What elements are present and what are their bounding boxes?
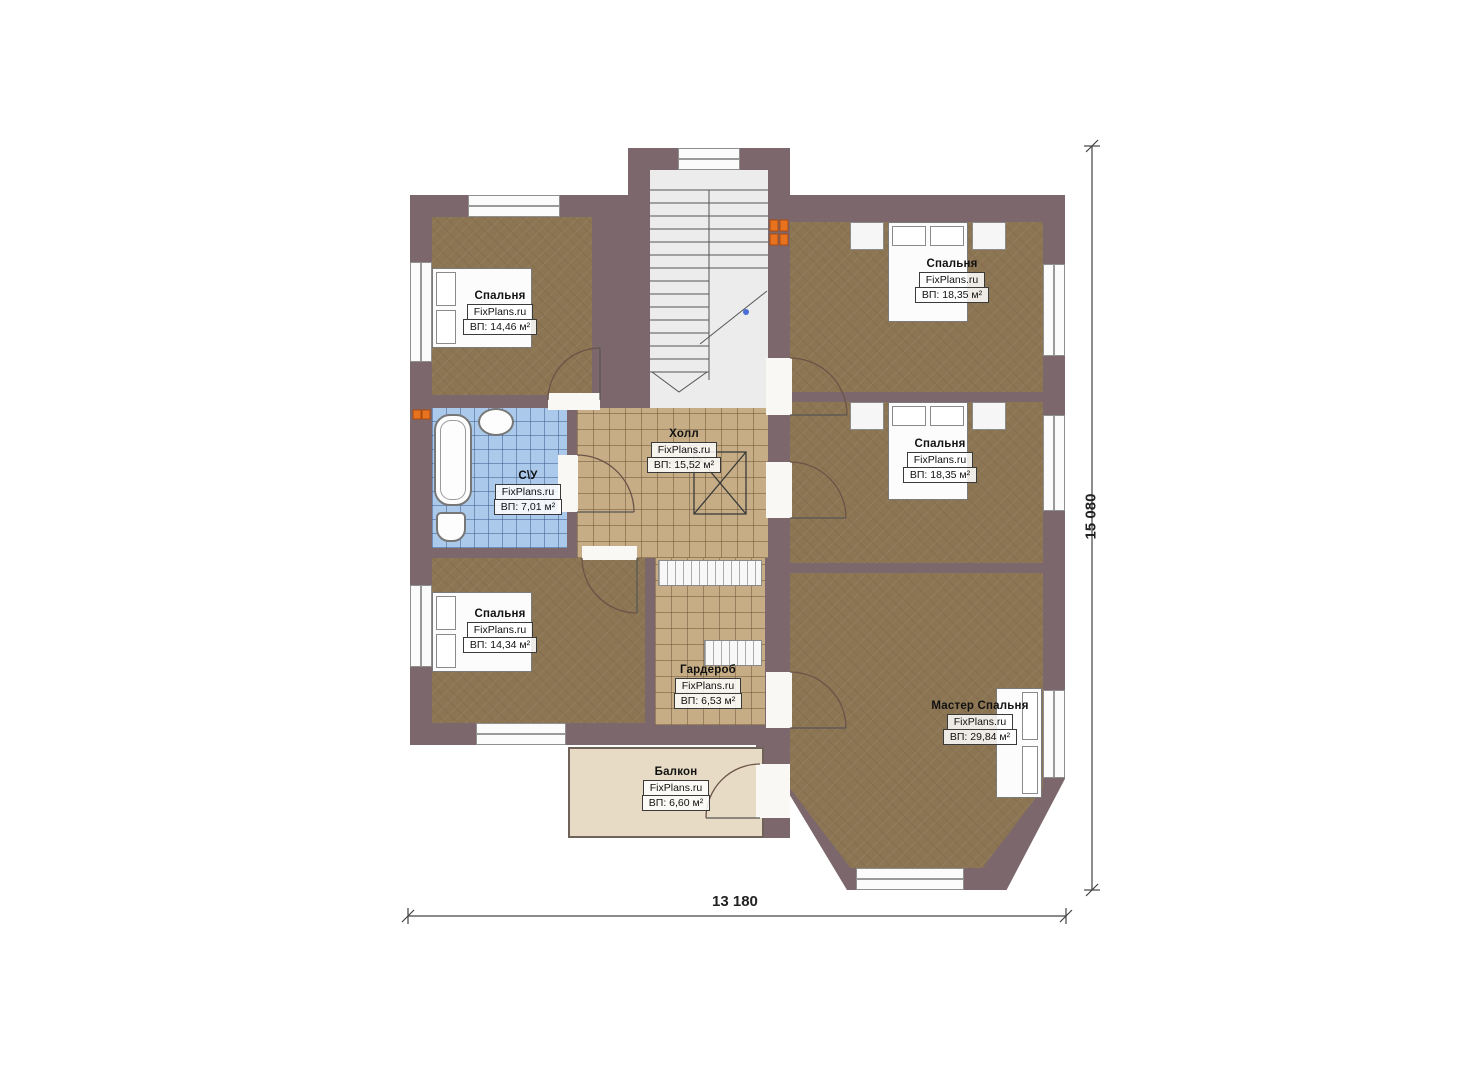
area-label: ВП: 6,53 м²	[674, 693, 742, 709]
window	[678, 148, 740, 170]
door-opening	[766, 358, 792, 415]
area-label: ВП: 14,34 м²	[463, 637, 537, 653]
brand-label: FixPlans.ru	[907, 452, 974, 468]
brand-label: FixPlans.ru	[495, 484, 562, 500]
room-label-hall: Холл FixPlans.ru ВП: 15,52 м²	[634, 428, 734, 473]
room-name: Мастер Спальня	[931, 700, 1028, 712]
nightstand	[850, 402, 884, 430]
area-label: ВП: 14,46 м²	[463, 319, 537, 335]
room-name: Спальня	[474, 608, 525, 620]
brand-label: FixPlans.ru	[651, 442, 718, 458]
window	[1043, 264, 1065, 356]
window	[410, 262, 432, 362]
room-label-master-bedroom: Мастер Спальня FixPlans.ru ВП: 29,84 м²	[930, 700, 1030, 745]
room-name: С\У	[518, 470, 537, 482]
door-opening	[582, 546, 637, 560]
area-label: ВП: 7,01 м²	[494, 499, 562, 515]
room-label-bedroom-bottom-left: Спальня FixPlans.ru ВП: 14,34 м²	[450, 608, 550, 653]
door-opening	[548, 393, 600, 410]
window	[856, 868, 964, 890]
room-label-bathroom: С\У FixPlans.ru ВП: 7,01 м²	[478, 470, 578, 515]
stairwell-floor	[650, 170, 768, 408]
room-label-bedroom-top-left: Спальня FixPlans.ru ВП: 14,46 м²	[450, 290, 550, 335]
brand-label: FixPlans.ru	[919, 272, 986, 288]
nightstand	[850, 222, 884, 250]
pillow	[1022, 746, 1038, 794]
area-label: ВП: 18,35 м²	[915, 287, 989, 303]
room-label-bedroom-top-right: Спальня FixPlans.ru ВП: 18,35 м²	[902, 258, 1002, 303]
brand-label: FixPlans.ru	[467, 622, 534, 638]
nightstand	[972, 222, 1006, 250]
area-label: ВП: 29,84 м²	[943, 729, 1017, 745]
window	[468, 195, 560, 217]
area-label: ВП: 6,60 м²	[642, 795, 710, 811]
room-name: Балкон	[655, 766, 698, 778]
pillow	[930, 226, 964, 246]
brand-label: FixPlans.ru	[467, 304, 534, 320]
room-name: Спальня	[474, 290, 525, 302]
sink	[478, 408, 514, 436]
room-label-bedroom-mid-right: Спальня FixPlans.ru ВП: 18,35 м²	[890, 438, 990, 483]
brand-label: FixPlans.ru	[643, 780, 710, 796]
area-label: ВП: 18,35 м²	[903, 467, 977, 483]
room-name: Гардероб	[680, 664, 736, 676]
window	[410, 585, 432, 667]
wardrobe-shelf	[704, 640, 762, 666]
brand-label: FixPlans.ru	[675, 678, 742, 694]
room-name: Холл	[669, 428, 699, 440]
window	[1043, 690, 1065, 778]
room-label-wardrobe: Гардероб FixPlans.ru ВП: 6,53 м²	[658, 664, 758, 709]
nightstand	[972, 402, 1006, 430]
window	[1043, 415, 1065, 511]
room-name: Спальня	[926, 258, 977, 270]
brand-label: FixPlans.ru	[947, 714, 1014, 730]
room-label-balcony: Балкон FixPlans.ru ВП: 6,60 м²	[626, 766, 726, 811]
floor-plan-canvas: Спальня FixPlans.ru ВП: 14,46 м² Спальня…	[0, 0, 1474, 1080]
door-opening	[766, 462, 792, 518]
door-opening	[756, 764, 790, 818]
pillow	[892, 406, 926, 426]
dimension-width-label: 13 180	[712, 893, 758, 910]
window	[476, 723, 566, 745]
door-opening	[766, 672, 792, 728]
pillow	[892, 226, 926, 246]
toilet	[436, 512, 466, 542]
pillow	[930, 406, 964, 426]
area-label: ВП: 15,52 м²	[647, 457, 721, 473]
wardrobe-shelf	[658, 560, 762, 586]
dimension-height-label: 15 080	[1082, 494, 1099, 540]
bathtub	[434, 414, 472, 506]
room-name: Спальня	[914, 438, 965, 450]
